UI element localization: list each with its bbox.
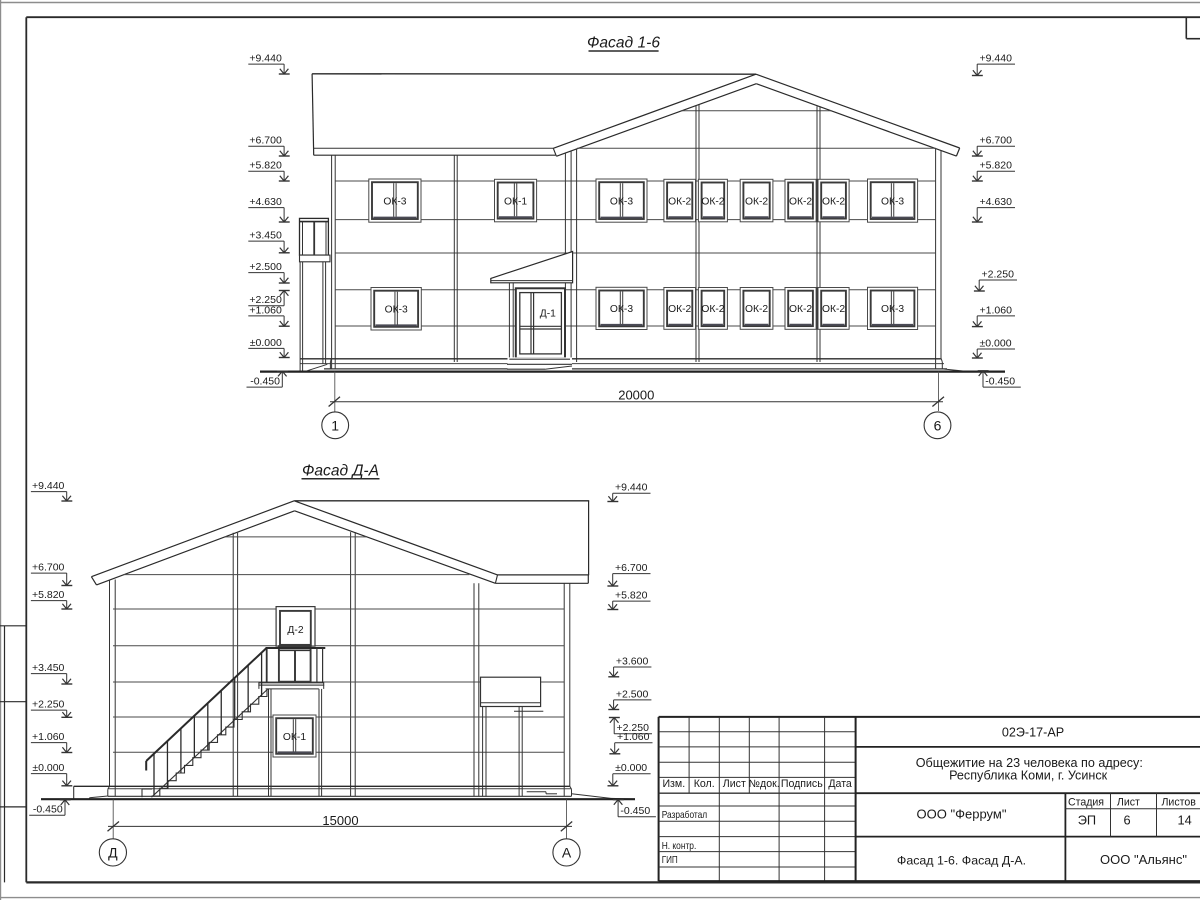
svg-text:Подпись: Подпись	[781, 778, 823, 790]
svg-text:14: 14	[1177, 813, 1191, 828]
svg-text:Дата: Дата	[828, 778, 852, 790]
svg-text:А: А	[562, 845, 572, 861]
svg-text:Кол.: Кол.	[694, 778, 715, 790]
svg-text:+1.060: +1.060	[980, 304, 1013, 316]
svg-text:Фасад 1-6: Фасад 1-6	[587, 35, 660, 52]
svg-text:Д-2: Д-2	[287, 625, 303, 636]
svg-text:+5.820: +5.820	[32, 589, 65, 601]
svg-text:±0.000: ±0.000	[32, 762, 64, 774]
svg-text:+5.820: +5.820	[249, 160, 282, 172]
svg-text:-0.450: -0.450	[985, 376, 1015, 388]
svg-text:6: 6	[934, 417, 942, 433]
svg-text:Д: Д	[108, 845, 118, 861]
svg-text:+9.440: +9.440	[980, 53, 1013, 65]
svg-text:+6.700: +6.700	[980, 135, 1013, 147]
svg-text:Разработал: Разработал	[662, 809, 708, 821]
svg-text:+1.060: +1.060	[617, 731, 650, 743]
svg-text:-0.450: -0.450	[250, 376, 280, 388]
svg-text:ОК-1: ОК-1	[504, 196, 527, 207]
svg-text:Н. контр.: Н. контр.	[662, 841, 697, 852]
svg-text:+2.250: +2.250	[32, 699, 65, 711]
svg-text:ГИП: ГИП	[662, 855, 678, 866]
svg-text:+9.440: +9.440	[615, 482, 648, 494]
svg-text:ЭП: ЭП	[1078, 813, 1096, 828]
svg-text:ОК-3: ОК-3	[610, 196, 633, 207]
svg-text:-0.450: -0.450	[620, 805, 650, 817]
svg-text:ОК-2: ОК-2	[822, 304, 845, 315]
svg-text:+4.630: +4.630	[249, 196, 282, 208]
svg-text:+6.700: +6.700	[249, 135, 282, 147]
svg-text:+2.250: +2.250	[982, 268, 1015, 280]
svg-text:+5.820: +5.820	[980, 160, 1013, 172]
svg-text:ОК-2: ОК-2	[668, 304, 691, 315]
svg-text:+2.500: +2.500	[616, 688, 649, 700]
svg-text:+3.450: +3.450	[32, 662, 65, 674]
svg-text:ООО "Альянс": ООО "Альянс"	[1100, 852, 1187, 867]
svg-text:±0.000: ±0.000	[250, 337, 282, 349]
svg-text:ОК-2: ОК-2	[745, 196, 768, 207]
svg-text:+3.600: +3.600	[616, 655, 649, 667]
svg-text:Д-1: Д-1	[540, 309, 556, 320]
svg-text:Республика Коми, г. Усинск: Республика Коми, г. Усинск	[949, 769, 1108, 783]
svg-text:Стадия: Стадия	[1068, 796, 1104, 808]
svg-text:-0.450: -0.450	[33, 804, 63, 816]
svg-text:Изм.: Изм.	[662, 778, 685, 790]
svg-text:+2.500: +2.500	[249, 261, 282, 273]
svg-text:+9.440: +9.440	[249, 53, 282, 65]
svg-text:ОК-2: ОК-2	[745, 304, 768, 315]
svg-text:ООО "Феррум": ООО "Феррум"	[917, 807, 1007, 822]
svg-text:ОК-3: ОК-3	[881, 304, 904, 315]
svg-text:ОК-2: ОК-2	[701, 196, 724, 207]
svg-text:Фасад Д-А: Фасад Д-А	[302, 462, 379, 479]
svg-text:ОК-2: ОК-2	[789, 196, 812, 207]
svg-text:+9.440: +9.440	[32, 480, 65, 492]
svg-text:02Э-17-АР: 02Э-17-АР	[1002, 725, 1064, 739]
svg-text:+4.630: +4.630	[980, 196, 1013, 208]
svg-text:Лист: Лист	[723, 778, 746, 790]
svg-text:±0.000: ±0.000	[615, 762, 647, 774]
svg-text:+5.820: +5.820	[615, 590, 648, 602]
svg-text:+6.700: +6.700	[615, 562, 648, 574]
svg-text:6: 6	[1123, 813, 1130, 828]
svg-text:+1.060: +1.060	[32, 731, 65, 743]
svg-text:20000: 20000	[618, 388, 654, 403]
svg-text:ОК-2: ОК-2	[701, 304, 724, 315]
svg-text:Фасад 1-6. Фасад Д-А.: Фасад 1-6. Фасад Д-А.	[897, 853, 1026, 867]
svg-text:ОК-2: ОК-2	[789, 304, 812, 315]
svg-text:ОК-3: ОК-3	[383, 196, 406, 207]
svg-text:ОК-2: ОК-2	[668, 196, 691, 207]
svg-text:ОК-2: ОК-2	[822, 196, 845, 207]
svg-text:ОК-1: ОК-1	[283, 732, 306, 743]
svg-text:+6.700: +6.700	[32, 562, 65, 574]
svg-text:15000: 15000	[322, 813, 358, 828]
svg-text:+1.060: +1.060	[249, 304, 282, 316]
svg-text:№док.: №док.	[749, 778, 780, 790]
svg-text:+3.450: +3.450	[249, 230, 282, 242]
svg-text:±0.000: ±0.000	[980, 337, 1012, 349]
svg-text:1: 1	[331, 417, 339, 433]
svg-text:ОК-3: ОК-3	[881, 196, 904, 207]
svg-text:ОК-3: ОК-3	[610, 304, 633, 315]
svg-text:Листов: Листов	[1161, 796, 1196, 808]
svg-text:Лист: Лист	[1117, 796, 1140, 808]
svg-text:ОК-3: ОК-3	[385, 305, 408, 316]
